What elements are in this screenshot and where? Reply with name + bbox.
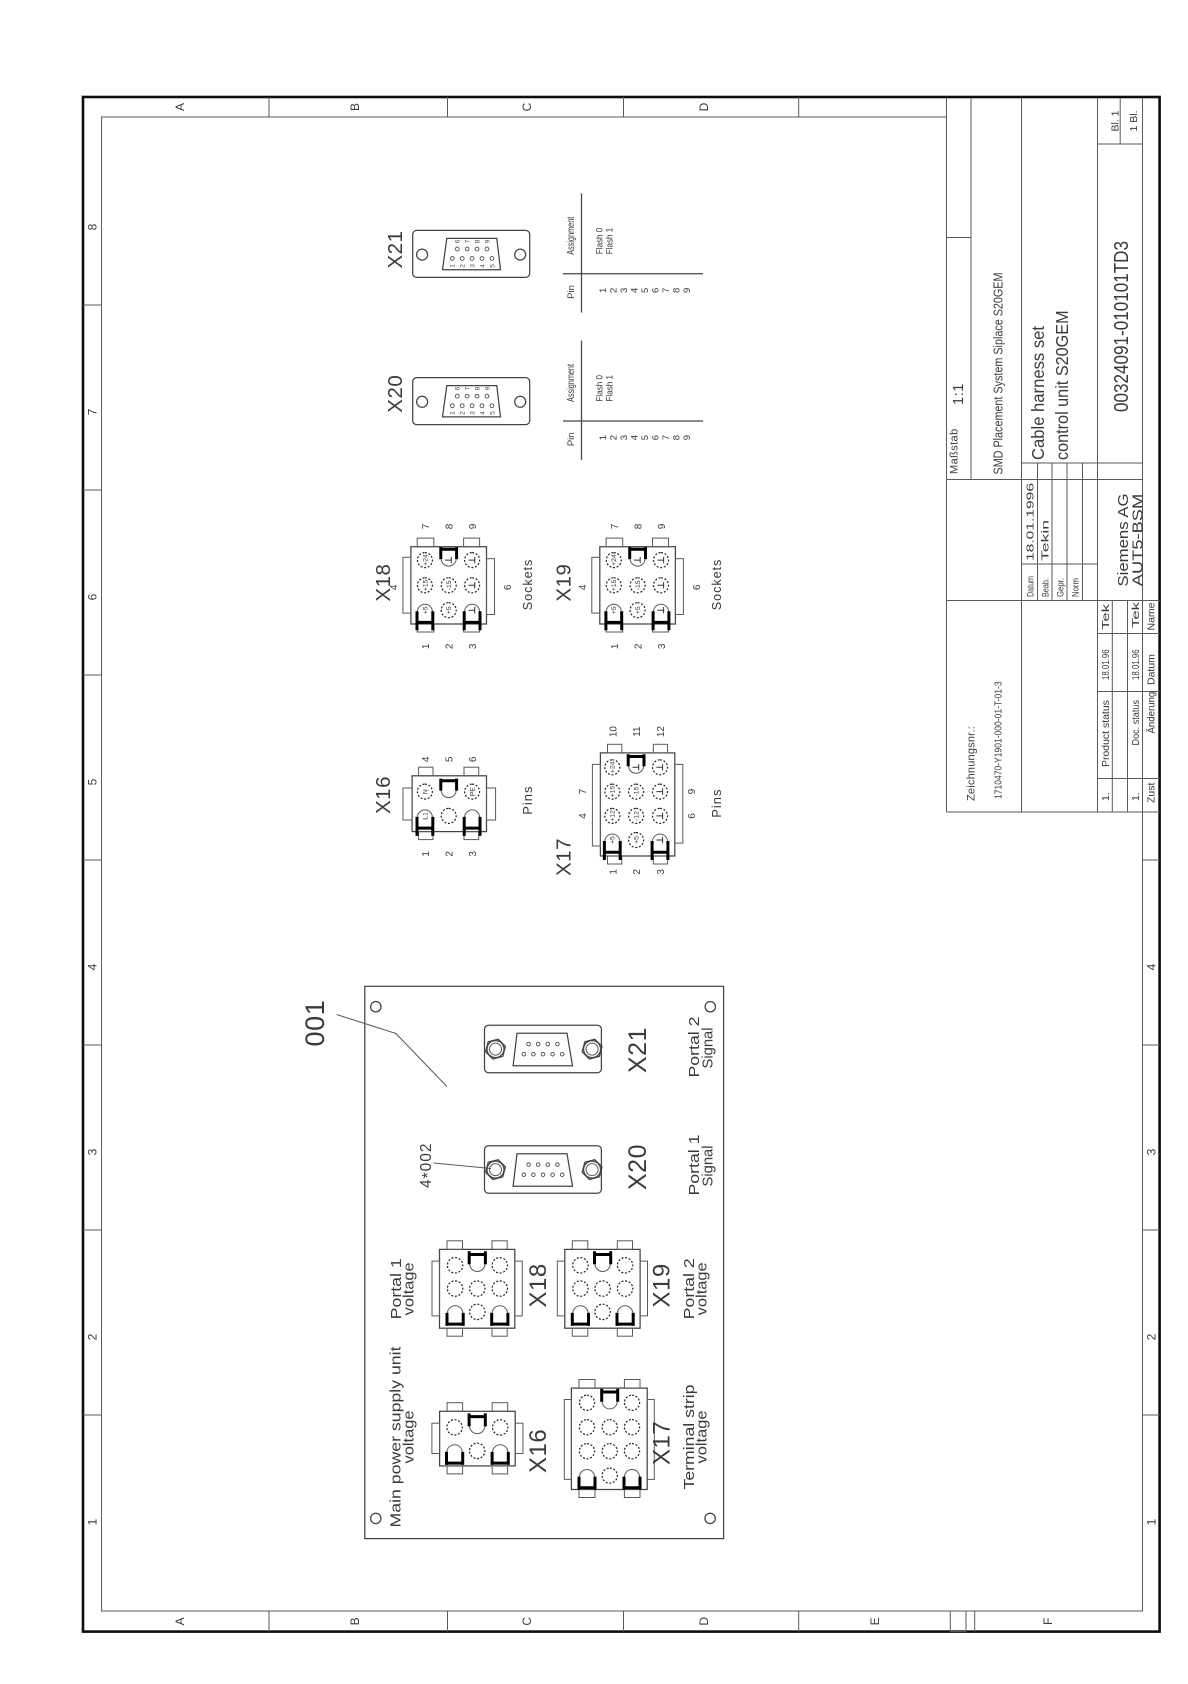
- svg-text:X18: X18: [372, 564, 395, 602]
- svg-text:9: 9: [682, 288, 693, 293]
- svg-text:+5: +5: [422, 606, 429, 614]
- svg-text:Pins: Pins: [709, 788, 724, 817]
- svg-text:8: 8: [634, 523, 645, 529]
- svg-text:X18: X18: [525, 1263, 552, 1307]
- svg-text:4: 4: [578, 813, 589, 819]
- svg-text:1:1: 1:1: [951, 383, 967, 405]
- svg-text:1710470-Y1901-000-01-T-01-3: 1710470-Y1901-000-01-T-01-3: [993, 681, 1005, 799]
- svg-text:7: 7: [661, 435, 672, 440]
- svg-text:voltage: voltage: [695, 1262, 711, 1315]
- svg-text:2: 2: [634, 643, 645, 649]
- svg-text:3: 3: [1145, 1148, 1159, 1155]
- svg-text:Maßstab: Maßstab: [949, 428, 961, 474]
- svg-text:6: 6: [687, 813, 698, 819]
- svg-text:12: 12: [656, 726, 667, 738]
- svg-text:+5: +5: [611, 606, 618, 614]
- svg-text:Pins: Pins: [520, 785, 535, 814]
- svg-text:6: 6: [503, 584, 514, 590]
- svg-text:Assignment: Assignment: [566, 217, 577, 255]
- svg-text:9: 9: [687, 788, 698, 794]
- svg-text:-15: -15: [634, 786, 641, 796]
- svg-text:18.01.1996: 18.01.1996: [1025, 483, 1037, 561]
- svg-text:001: 001: [300, 1000, 330, 1047]
- svg-text:B: B: [348, 103, 362, 111]
- svg-text:+5: +5: [446, 606, 453, 614]
- svg-text:Datum: Datum: [1026, 576, 1037, 597]
- svg-text:3: 3: [86, 1148, 100, 1155]
- svg-text:4: 4: [389, 584, 400, 590]
- svg-text:1: 1: [608, 869, 619, 875]
- svg-text:-15: -15: [635, 580, 642, 590]
- svg-text:1 Bl.: 1 Bl.: [1128, 110, 1140, 131]
- svg-text:D: D: [697, 1617, 711, 1626]
- svg-text:C: C: [520, 102, 534, 111]
- svg-text:6: 6: [468, 756, 479, 762]
- svg-text:6: 6: [692, 584, 703, 590]
- svg-text:4: 4: [479, 411, 486, 415]
- svg-text:Assignment: Assignment: [566, 364, 577, 402]
- svg-text:X19: X19: [552, 564, 575, 602]
- svg-text:Beab.: Beab.: [1041, 578, 1052, 597]
- svg-text:7: 7: [86, 408, 100, 415]
- svg-text:6: 6: [455, 239, 462, 243]
- svg-text:7: 7: [661, 288, 672, 293]
- svg-text:4: 4: [630, 435, 641, 440]
- svg-text:Flash 1: Flash 1: [604, 228, 615, 255]
- svg-text:8: 8: [474, 386, 481, 390]
- svg-text:4: 4: [421, 756, 432, 762]
- svg-text:Signal: Signal: [701, 1028, 717, 1069]
- svg-text:+12: +12: [610, 810, 617, 822]
- svg-text:A: A: [173, 1617, 187, 1625]
- svg-text:9: 9: [484, 239, 491, 243]
- svg-text:+24: +24: [611, 554, 618, 566]
- svg-text:X21: X21: [384, 231, 407, 269]
- svg-text:1.: 1.: [1130, 792, 1142, 801]
- svg-text:Bl. 1: Bl. 1: [1110, 110, 1122, 131]
- svg-text:Cable harness set: Cable harness set: [1028, 326, 1048, 460]
- svg-text:18.01.96: 18.01.96: [1130, 649, 1142, 680]
- svg-text:PE: PE: [470, 787, 477, 797]
- svg-text:+15: +15: [610, 786, 617, 798]
- svg-text:6: 6: [651, 288, 662, 293]
- svg-text:2: 2: [445, 643, 456, 649]
- svg-text:Tek: Tek: [1100, 603, 1112, 630]
- svg-text:4: 4: [479, 264, 486, 268]
- svg-text:7: 7: [421, 523, 432, 529]
- svg-text:1: 1: [598, 435, 609, 440]
- svg-text:6: 6: [86, 593, 100, 600]
- svg-text:7: 7: [610, 523, 621, 529]
- svg-text:Zeichnungsnr.:: Zeichnungsnr.:: [966, 726, 978, 801]
- svg-text:1: 1: [86, 1518, 100, 1525]
- svg-text:8: 8: [672, 435, 683, 440]
- svg-text:X16: X16: [372, 776, 395, 814]
- svg-text:Datum: Datum: [1146, 654, 1158, 685]
- svg-text:5: 5: [640, 435, 651, 440]
- svg-text:-15: -15: [446, 580, 453, 590]
- svg-text:+5: +5: [635, 606, 642, 614]
- svg-text:X20: X20: [384, 375, 407, 413]
- svg-text:1: 1: [610, 643, 621, 649]
- svg-text:1: 1: [421, 851, 432, 857]
- svg-text:2: 2: [1145, 1333, 1159, 1340]
- svg-text:8: 8: [474, 239, 481, 243]
- svg-text:Sockets: Sockets: [709, 559, 724, 611]
- svg-text:Norm: Norm: [1071, 578, 1082, 597]
- svg-text:Name: Name: [1146, 602, 1158, 630]
- svg-text:3: 3: [656, 869, 667, 875]
- svg-text:2: 2: [609, 288, 620, 293]
- svg-text:control unit S20GEM: control unit S20GEM: [1052, 310, 1072, 460]
- svg-text:1.: 1.: [1100, 792, 1112, 801]
- svg-text:AUT5-BSM: AUT5-BSM: [1130, 494, 1147, 587]
- svg-text:3: 3: [657, 643, 668, 649]
- svg-text:5: 5: [86, 778, 100, 785]
- svg-text:Zust: Zust: [1146, 782, 1158, 803]
- svg-text:L1: L1: [422, 812, 429, 820]
- svg-text:5: 5: [489, 411, 496, 415]
- svg-text:7: 7: [578, 788, 589, 794]
- svg-text:8: 8: [86, 223, 100, 230]
- svg-text:1: 1: [450, 264, 457, 268]
- svg-text:5: 5: [489, 264, 496, 268]
- svg-text:N: N: [422, 789, 429, 794]
- svg-text:1: 1: [421, 643, 432, 649]
- svg-text:Gepr.: Gepr.: [1056, 578, 1067, 597]
- svg-text:Tekin: Tekin: [1040, 520, 1052, 561]
- svg-text:X21: X21: [624, 1027, 652, 1073]
- svg-text:Product status: Product status: [1100, 700, 1112, 767]
- svg-text:9: 9: [484, 386, 491, 390]
- svg-text:X17: X17: [649, 1421, 676, 1465]
- svg-text:1: 1: [598, 288, 609, 293]
- svg-text:D: D: [697, 102, 711, 111]
- svg-text:A: A: [173, 103, 187, 111]
- svg-text:Flash 1: Flash 1: [604, 375, 615, 402]
- svg-text:C: C: [520, 1617, 534, 1626]
- svg-text:6: 6: [651, 435, 662, 440]
- svg-text:Pin: Pin: [566, 285, 577, 299]
- svg-text:-12: -12: [634, 811, 641, 821]
- svg-text:SMD Placement System Siplace S: SMD Placement System Siplace S20GEM: [992, 273, 1006, 475]
- svg-text:3: 3: [468, 643, 479, 649]
- svg-text:voltage: voltage: [695, 1411, 711, 1464]
- svg-text:10: 10: [608, 726, 619, 738]
- svg-text:9: 9: [657, 523, 668, 529]
- svg-text:Sockets: Sockets: [520, 559, 535, 611]
- svg-text:8: 8: [672, 288, 683, 293]
- svg-text:3: 3: [470, 411, 477, 415]
- svg-text:+15: +15: [422, 579, 429, 591]
- svg-text:Doc. status: Doc. status: [1130, 700, 1142, 746]
- svg-text:+5: +5: [634, 836, 641, 844]
- svg-text:5: 5: [445, 756, 456, 762]
- svg-text:E: E: [868, 1617, 882, 1625]
- svg-text:1: 1: [450, 411, 457, 415]
- svg-text:2: 2: [86, 1333, 100, 1340]
- svg-text:00324091-010101TD3: 00324091-010101TD3: [1111, 241, 1133, 412]
- svg-text:3: 3: [470, 264, 477, 268]
- svg-text:1: 1: [1145, 1518, 1159, 1525]
- svg-text:Signal: Signal: [701, 1146, 717, 1187]
- svg-text:4*002: 4*002: [418, 1142, 437, 1188]
- svg-text:8: 8: [445, 523, 456, 529]
- svg-text:Pin: Pin: [566, 432, 577, 446]
- svg-text:X16: X16: [525, 1429, 552, 1473]
- svg-text:+24: +24: [610, 761, 617, 773]
- svg-text:3: 3: [619, 288, 630, 293]
- svg-text:B: B: [348, 1617, 362, 1625]
- svg-text:Änderung: Änderung: [1146, 692, 1158, 734]
- svg-text:7: 7: [465, 386, 472, 390]
- svg-text:9: 9: [468, 523, 479, 529]
- svg-text:4: 4: [86, 963, 100, 970]
- svg-text:Tek: Tek: [1130, 601, 1142, 628]
- svg-text:+24: +24: [422, 554, 429, 566]
- svg-text:voltage: voltage: [402, 1411, 418, 1464]
- svg-text:3: 3: [468, 851, 479, 857]
- svg-text:+15: +15: [611, 579, 618, 591]
- svg-text:9: 9: [682, 435, 693, 440]
- svg-text:X17: X17: [553, 838, 576, 876]
- svg-text:7: 7: [465, 239, 472, 243]
- svg-text:4: 4: [1145, 963, 1159, 970]
- svg-text:2: 2: [632, 869, 643, 875]
- svg-text:3: 3: [619, 435, 630, 440]
- svg-text:4: 4: [630, 288, 641, 293]
- svg-text:6: 6: [455, 386, 462, 390]
- svg-text:2: 2: [460, 264, 467, 268]
- svg-text:11: 11: [632, 726, 643, 737]
- svg-text:voltage: voltage: [402, 1262, 418, 1315]
- svg-text:2: 2: [445, 851, 456, 857]
- svg-text:X20: X20: [624, 1144, 652, 1190]
- svg-text:F: F: [1041, 1618, 1055, 1625]
- svg-text:4: 4: [578, 584, 589, 590]
- svg-text:2: 2: [460, 411, 467, 415]
- svg-text:5: 5: [640, 288, 651, 293]
- svg-text:+5: +5: [610, 836, 617, 844]
- svg-text:X19: X19: [649, 1263, 676, 1307]
- svg-text:2: 2: [609, 435, 620, 440]
- svg-text:18.01.96: 18.01.96: [1100, 649, 1112, 680]
